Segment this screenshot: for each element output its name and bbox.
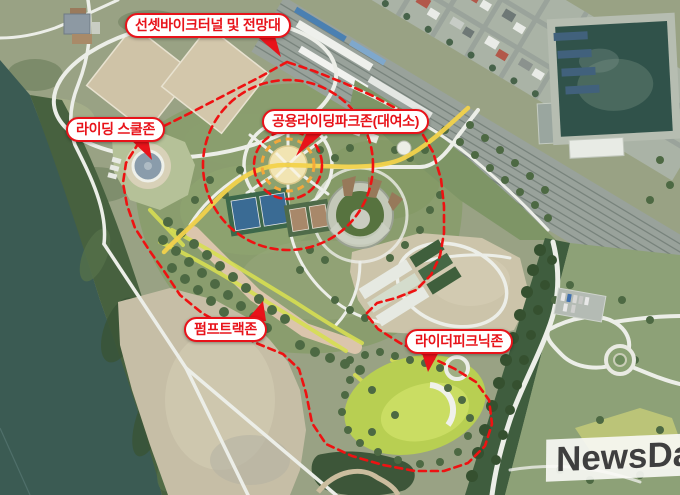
label-rider-picnic-zone: 라이더피크닉존 <box>405 329 513 354</box>
label-riding-school-zone: 라이딩 스쿨존 <box>66 117 165 142</box>
newsda-watermark: NewsDa <box>546 432 680 481</box>
watermark-text: NewsDa <box>556 434 680 480</box>
pond-building <box>569 138 624 159</box>
label-text: 공용라이딩파크존(대여소) <box>272 113 419 129</box>
flower-circle <box>606 346 634 374</box>
news-photo-aerial-map: 선셋바이크터널 및 전망대 라이딩 스쿨존 공용라이딩파크존(대여소) 펌프트랙… <box>0 0 680 495</box>
reservoir-pond <box>533 13 680 160</box>
satellite-map <box>0 0 680 495</box>
clay-courts <box>284 199 332 237</box>
label-sunset-bike-tunnel: 선셋바이크터널 및 전망대 <box>125 13 291 38</box>
label-text: 펌프트랙존 <box>194 321 257 337</box>
label-text: 라이더피크닉존 <box>415 333 503 349</box>
label-text: 선셋바이크터널 및 전망대 <box>135 17 281 33</box>
label-text: 라이딩 스쿨존 <box>76 121 155 137</box>
label-public-riding-park-zone: 공용라이딩파크존(대여소) <box>262 109 429 134</box>
label-pump-track-zone: 펌프트랙존 <box>184 317 267 342</box>
